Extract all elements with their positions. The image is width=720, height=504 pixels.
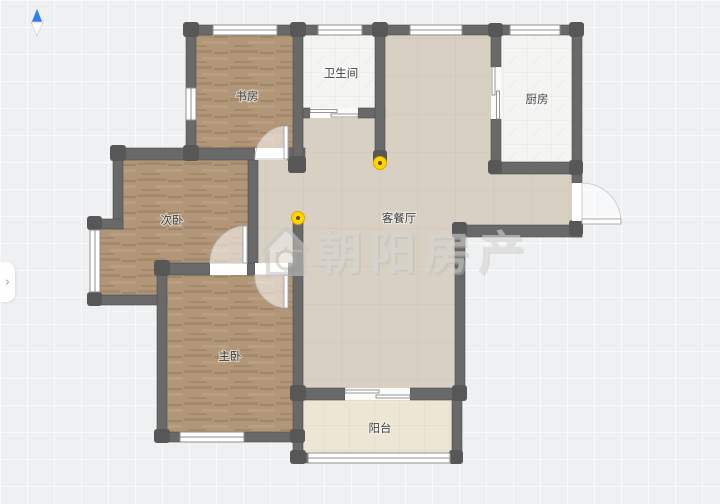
label-secondary-bedroom: 次卧 xyxy=(161,213,184,227)
window-master-bedroom-bottom xyxy=(180,432,244,442)
label-master-bedroom: 主卧 xyxy=(219,349,242,363)
light-marker[interactable] xyxy=(292,212,305,225)
label-kitchen: 厨房 xyxy=(526,92,549,106)
watermark-text: 朝阳房产 xyxy=(316,226,532,280)
label-living-dining: 客餐厅 xyxy=(382,211,417,225)
panel-expand-tab[interactable]: › xyxy=(0,262,15,302)
sliding-door-kitchen xyxy=(491,67,501,119)
label-bathroom: 卫生间 xyxy=(324,66,359,80)
window-living-top xyxy=(410,25,462,35)
light-marker[interactable] xyxy=(374,157,387,170)
floor-plan: 朝阳房产 朝阳房产 书房 卫生间 厨房 次卧 客餐厅 主卧 阳台 xyxy=(0,0,720,504)
label-study: 书房 xyxy=(236,89,259,103)
door-entrance xyxy=(572,183,621,224)
window-balcony-bottom xyxy=(308,453,450,463)
window-study-left xyxy=(186,88,196,120)
window-study-top xyxy=(213,25,277,35)
window-kitchen-top xyxy=(510,25,560,35)
chevron-right-icon: › xyxy=(5,275,10,290)
label-balcony: 阳台 xyxy=(369,421,392,435)
window-secondary-bedroom-left xyxy=(90,230,100,292)
window-bathroom-top xyxy=(318,25,362,35)
floorplan-canvas: 朝阳房产 朝阳房产 书房 卫生间 厨房 次卧 客餐厅 主卧 阳台 › xyxy=(0,0,720,504)
north-compass-icon xyxy=(31,9,43,36)
sliding-door-balcony xyxy=(345,388,410,400)
sliding-door-bathroom xyxy=(310,108,358,118)
